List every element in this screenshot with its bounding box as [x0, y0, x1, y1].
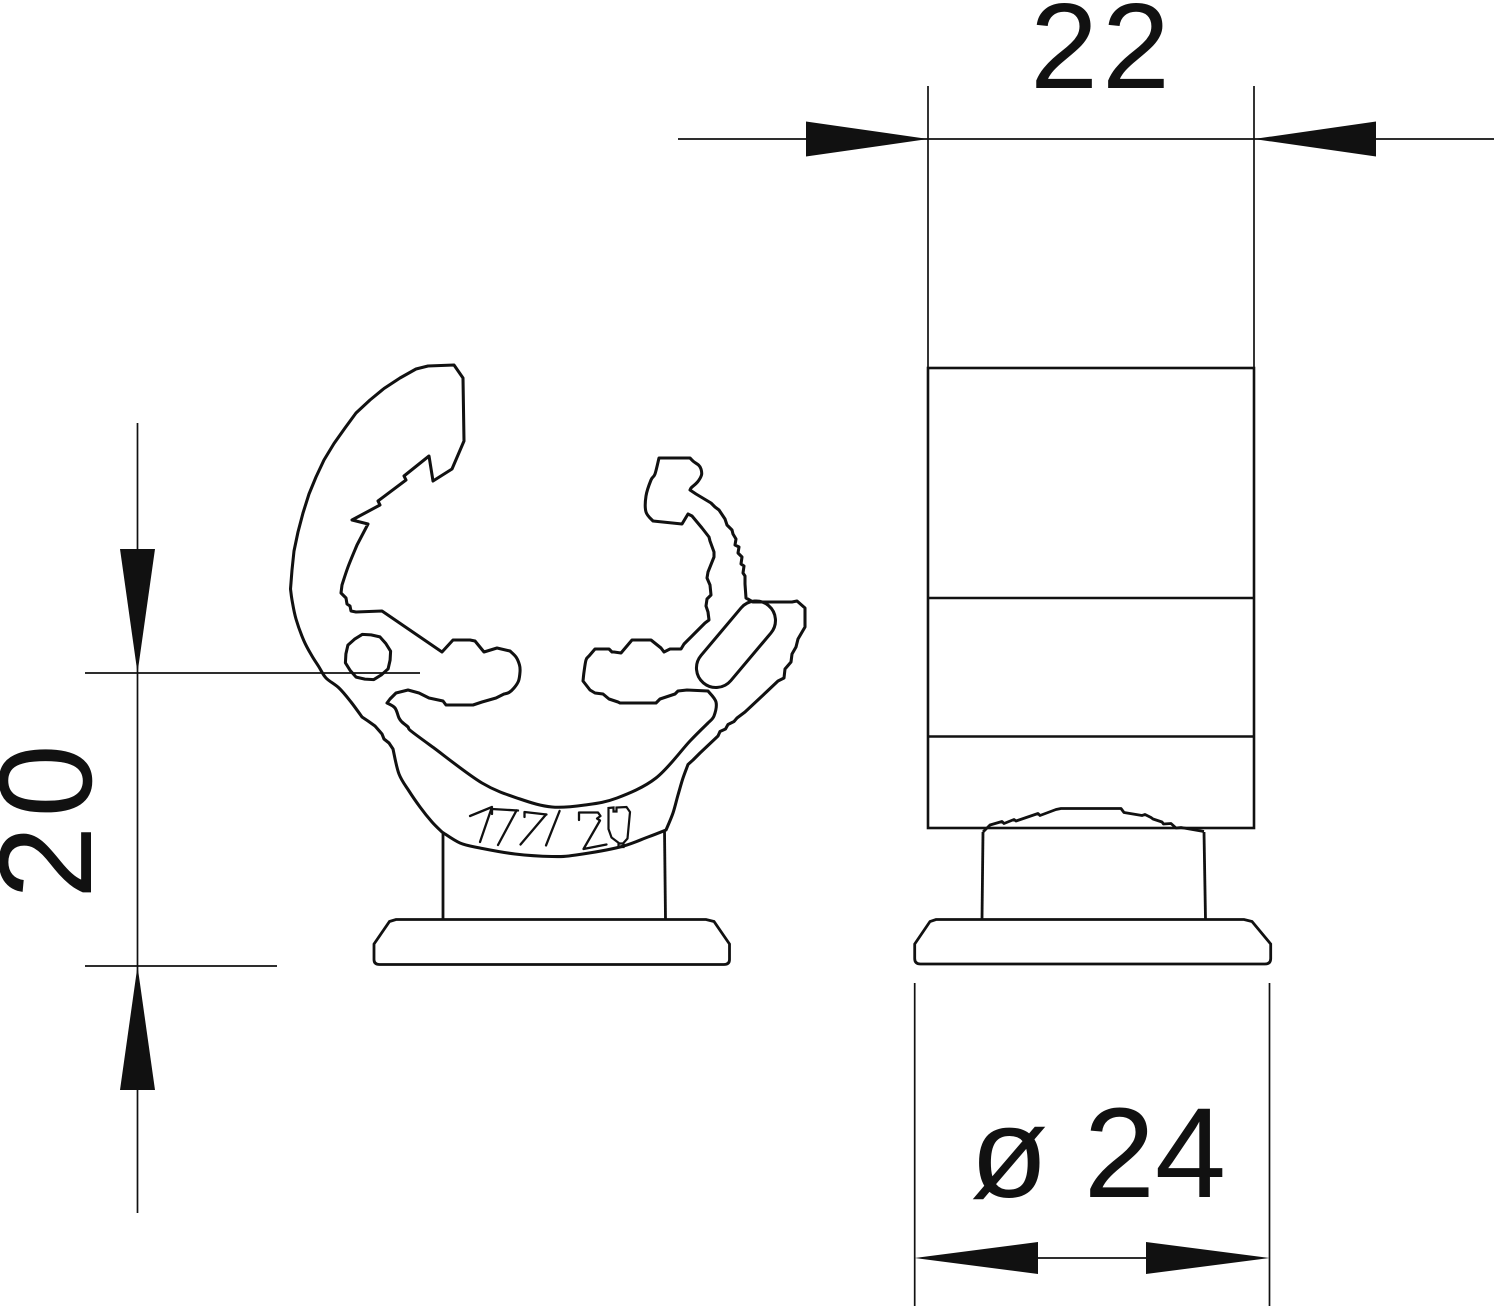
svg-text:20: 20 — [0, 736, 119, 899]
svg-text:ø 24: ø 24 — [970, 1082, 1226, 1225]
svg-text:22: 22 — [1030, 0, 1174, 114]
